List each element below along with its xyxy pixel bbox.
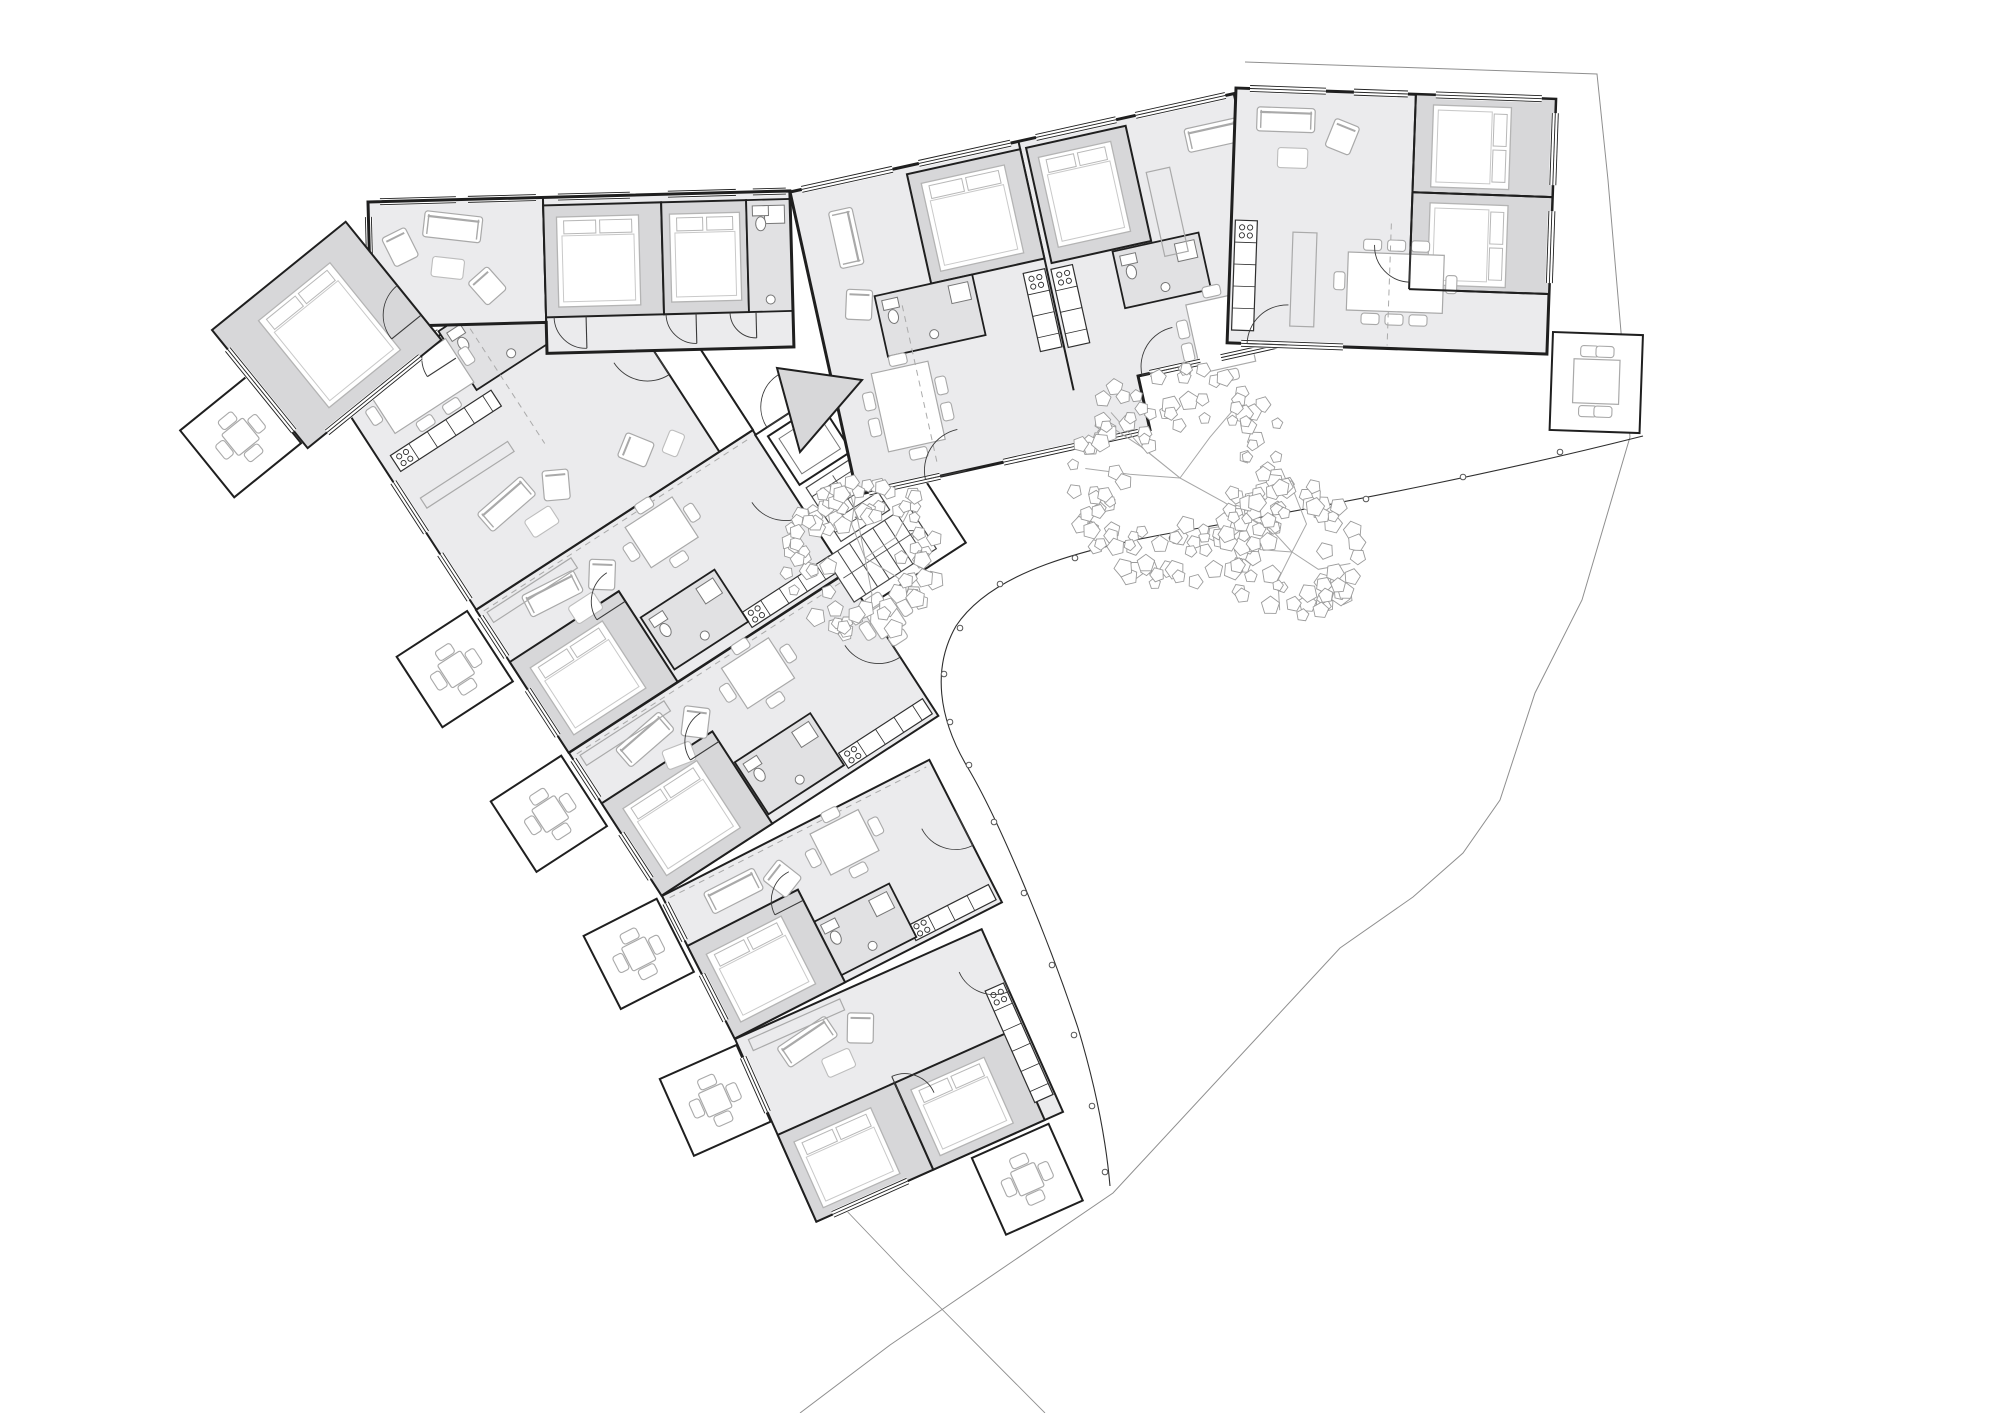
bed-icon xyxy=(921,165,1023,271)
window-band xyxy=(1354,89,1408,97)
leaf xyxy=(1196,394,1209,406)
bathroom-pod xyxy=(746,199,793,312)
leaf xyxy=(1189,575,1203,590)
bed-icon xyxy=(1431,105,1512,190)
leaf xyxy=(1270,451,1281,462)
walkway-dot xyxy=(941,671,947,677)
leaf xyxy=(1317,543,1333,560)
leaf xyxy=(1068,459,1079,470)
leaf xyxy=(1350,550,1365,565)
armchair-icon xyxy=(845,289,872,320)
leaf xyxy=(1199,413,1210,424)
walkway-dot xyxy=(1089,1103,1095,1109)
armchair-icon xyxy=(847,1013,874,1043)
leaf xyxy=(1272,418,1283,429)
wing-b xyxy=(789,91,1302,498)
window-band xyxy=(1546,211,1555,283)
wc-icon xyxy=(756,217,766,231)
walkway-dot xyxy=(947,719,953,725)
leaf xyxy=(1247,440,1258,451)
walkway-dot xyxy=(1049,962,1055,968)
walkway-dot xyxy=(957,625,963,631)
tree-icon xyxy=(1067,362,1296,589)
leaf xyxy=(1137,554,1154,571)
chair-icon xyxy=(1409,315,1427,327)
walkway-dot xyxy=(1071,1032,1077,1038)
walkway-dot xyxy=(1102,1169,1108,1175)
leaf xyxy=(1261,596,1279,613)
armchair-icon xyxy=(542,469,571,501)
walkway-dot xyxy=(966,762,972,768)
leaf xyxy=(1179,391,1198,409)
wing-b-right-block xyxy=(1227,85,1559,357)
walkway-dot xyxy=(1557,449,1563,455)
walkway-dot xyxy=(1021,890,1027,896)
floor-plan xyxy=(0,0,2000,1413)
walkway-dot xyxy=(1072,555,1078,561)
leaf xyxy=(1349,534,1366,552)
leaf xyxy=(1173,419,1186,433)
leaf xyxy=(1114,559,1132,577)
leaf xyxy=(1198,524,1209,534)
chair-icon xyxy=(1363,239,1381,251)
leaf xyxy=(1287,596,1302,611)
chair-icon xyxy=(1334,272,1346,290)
leaf xyxy=(1084,522,1100,539)
sofa-icon xyxy=(1257,107,1316,133)
window-band xyxy=(1250,85,1326,94)
window-band xyxy=(1550,113,1559,185)
leaf xyxy=(1205,560,1223,577)
walkway-dot xyxy=(1460,474,1466,480)
chair-icon xyxy=(1594,406,1612,418)
kitchen-counter xyxy=(1232,220,1258,331)
dining-table xyxy=(1346,252,1444,313)
wing-b-balcony xyxy=(1550,332,1643,433)
coffee-table xyxy=(1277,148,1308,169)
dining-table xyxy=(1573,359,1621,405)
sink-icon xyxy=(766,295,775,304)
chair-icon xyxy=(1361,313,1379,325)
leaf xyxy=(1200,544,1212,556)
leaf xyxy=(1067,485,1081,499)
leaf xyxy=(1152,535,1169,551)
armchair-icon xyxy=(589,559,616,590)
walkway-dot xyxy=(1363,496,1369,502)
coffee-table xyxy=(431,256,465,279)
chair-icon xyxy=(1411,241,1429,253)
bed-icon xyxy=(556,215,640,307)
walkway-dot xyxy=(991,819,997,825)
chair-icon xyxy=(1596,346,1614,358)
leaf xyxy=(1345,569,1360,585)
armchair-icon xyxy=(681,706,710,739)
floor-plan-svg xyxy=(0,0,2000,1413)
leaf xyxy=(1225,486,1238,500)
bed-icon xyxy=(669,212,741,302)
branch xyxy=(1085,469,1180,479)
walkway-dot xyxy=(997,581,1003,587)
branch xyxy=(1180,403,1239,478)
